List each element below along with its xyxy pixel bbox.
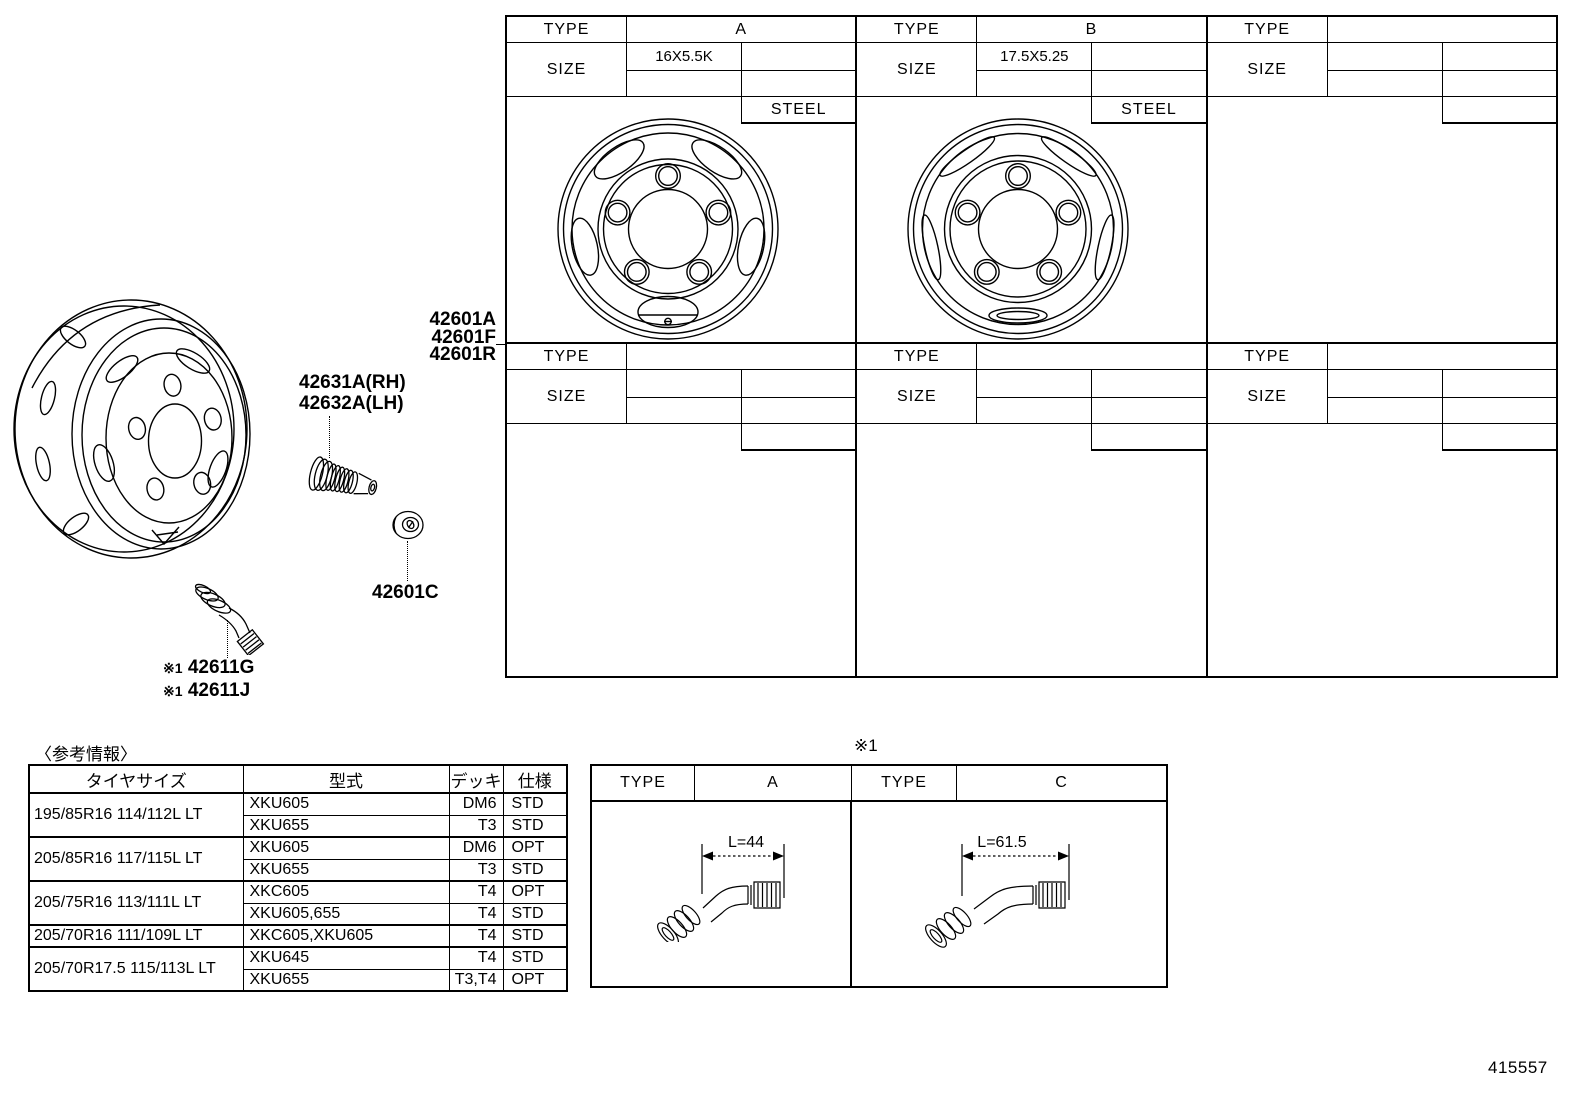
grid-cell (741, 370, 855, 423)
wheel-drawing-b (903, 116, 1133, 344)
ref-row: 205/75R16 113/111L LT XKC605 T4 OPT (29, 881, 567, 903)
valve-type-table: TYPE A TYPE C L=44 (590, 764, 1168, 988)
valve-cell-a: L=44 (592, 802, 852, 986)
spec-cell: OPT (503, 969, 567, 991)
deck-cell: T3,T4 (449, 969, 503, 991)
grid-cell (1442, 43, 1556, 96)
nut-code: 42601C (372, 582, 439, 604)
part-code: 42632A(LH) (299, 393, 406, 414)
model-cell: XKU655 (243, 815, 449, 837)
type-value: B (977, 17, 1205, 42)
tire-cell: 205/75R16 113/111L LT (29, 881, 243, 925)
valve-a-drawing (627, 830, 827, 942)
grid-cell (1091, 370, 1205, 423)
material-box (1091, 424, 1205, 451)
size-row: SIZE 17.5X5.25 (857, 43, 1205, 97)
type-value (1328, 17, 1556, 42)
valve-nut-drawing (391, 508, 427, 542)
part-code: ※1 42611J (163, 680, 254, 703)
size-label: SIZE (1208, 370, 1328, 423)
size-label: SIZE (857, 370, 977, 423)
hub-bolt-drawing (296, 440, 396, 527)
material-box (741, 424, 855, 451)
tire-cell: 205/70R17.5 115/113L LT (29, 947, 243, 991)
part-code: 42601R (408, 346, 496, 364)
model-cell: XKC605 (243, 881, 449, 903)
col-header-model: 型式 (243, 765, 449, 793)
col-header-tire: タイヤサイズ (29, 765, 243, 793)
type-row: TYPE A (507, 17, 855, 43)
spec-cell: STD (503, 925, 567, 947)
type-value (1328, 344, 1556, 369)
deck-cell: T4 (449, 925, 503, 947)
size-grid: 16X5.5K (627, 43, 855, 96)
valve-table-header: TYPE A TYPE C (592, 766, 1166, 802)
leader-line (496, 344, 506, 345)
spec-cell: OPT (503, 837, 567, 859)
reference-table: タイヤサイズ 型式 デッキ 仕様 195/85R16 114/112L LT X… (28, 764, 568, 992)
deck-cell: T4 (449, 881, 503, 903)
type-label: TYPE (857, 344, 977, 369)
type-label: TYPE (852, 766, 957, 800)
spec-cell: STD (503, 815, 567, 837)
hub-bolt-codes: 42631A(RH) 42632A(LH) (299, 372, 406, 414)
ref-row: 195/85R16 114/112L LT XKU605 DM6 STD (29, 793, 567, 815)
spec-cell: STD (503, 859, 567, 881)
size-row: SIZE (857, 370, 1205, 424)
type-value (977, 344, 1205, 369)
valve-table-note: ※1 (854, 736, 878, 756)
deck-cell: DM6 (449, 837, 503, 859)
type-value: C (957, 766, 1166, 800)
type-label: TYPE (507, 344, 627, 369)
type-value: A (695, 766, 852, 800)
model-cell: XKU605,655 (243, 903, 449, 925)
size-row: SIZE (507, 370, 855, 424)
grid-cell (741, 43, 855, 96)
col-header-deck: デッキ (449, 765, 503, 793)
deck-cell: T3 (449, 815, 503, 837)
size-grid (1328, 370, 1556, 423)
type-value (627, 344, 855, 369)
reference-caption: 〈参考情報〉 (35, 740, 137, 765)
size-row: SIZE 16X5.5K (507, 43, 855, 97)
parts-catalog-page: { "wheel_table": { "panels_top": [ { "ty… (0, 0, 1592, 1099)
wheel-panel-b: TYPE B SIZE 17.5X5.25 STEEL (857, 17, 1207, 676)
size-label: SIZE (507, 43, 627, 96)
type-value: A (627, 17, 855, 42)
model-cell: XKU605 (243, 837, 449, 859)
part-code: 42601A (408, 311, 496, 329)
size-value (1328, 43, 1442, 70)
size-row: SIZE (1208, 43, 1556, 97)
wheel-drawing-a (553, 116, 783, 344)
wheel-panel-blank: TYPE SIZE TYPE SIZE (1208, 17, 1556, 676)
grid-cell (1091, 43, 1205, 96)
size-row: SIZE (1208, 370, 1556, 424)
size-label: SIZE (507, 370, 627, 423)
footnote-mark: ※1 (163, 683, 183, 699)
type-row: TYPE (1208, 17, 1556, 43)
leader-line (227, 620, 228, 658)
model-cell: XKU645 (243, 947, 449, 969)
spec-cell: STD (503, 903, 567, 925)
part-code: 42631A(RH) (299, 372, 406, 393)
leader-line (407, 541, 408, 581)
wheel-panel-a: TYPE A SIZE 16X5.5K STEEL (507, 17, 857, 676)
wheel-part-codes: 42601A 42601F 42601R (408, 311, 496, 364)
size-value (1328, 370, 1442, 397)
size-value: 17.5X5.25 (977, 43, 1091, 70)
deck-cell: T4 (449, 947, 503, 969)
material-box (1442, 424, 1556, 451)
figure-number: 415557 (1488, 1058, 1548, 1078)
type-label: TYPE (592, 766, 695, 800)
spec-cell: STD (503, 947, 567, 969)
type-label: TYPE (507, 17, 627, 42)
footnote-mark: ※1 (163, 660, 183, 676)
size-grid (1328, 43, 1556, 96)
size-value: 16X5.5K (627, 43, 741, 70)
deck-cell: DM6 (449, 793, 503, 815)
valve-cell-c: L=61.5 (852, 802, 1166, 986)
valve-table-body: L=44 (592, 802, 1166, 986)
tire-cell: 205/85R16 117/115L LT (29, 837, 243, 881)
type-label: TYPE (1208, 344, 1328, 369)
model-cell: XKU605 (243, 793, 449, 815)
tire-valve-drawing (193, 581, 273, 655)
size-label: SIZE (1208, 43, 1328, 96)
size-grid: 17.5X5.25 (977, 43, 1205, 96)
ref-row: 205/70R16 111/109L LT XKC605,XKU605 T4 S… (29, 925, 567, 947)
type-row: TYPE (857, 344, 1205, 370)
deck-cell: T3 (449, 859, 503, 881)
ref-row: 205/85R16 117/115L LT XKU605 DM6 OPT (29, 837, 567, 859)
tire-cell: 195/85R16 114/112L LT (29, 793, 243, 837)
valve-part-codes: ※1 42611G ※1 42611J (163, 657, 254, 702)
ref-row: 205/70R17.5 115/113L LT XKU645 T4 STD (29, 947, 567, 969)
wheel-spec-table: TYPE A SIZE 16X5.5K STEEL (505, 15, 1558, 678)
model-cell: XKC605,XKU605 (243, 925, 449, 947)
tire-cell: 205/70R16 111/109L LT (29, 925, 243, 947)
type-row: TYPE (1208, 344, 1556, 370)
spec-cell: STD (503, 793, 567, 815)
spec-cell: OPT (503, 881, 567, 903)
type-row: TYPE (507, 344, 855, 370)
material-box (1442, 97, 1556, 124)
size-value (977, 370, 1091, 397)
deck-cell: T4 (449, 903, 503, 925)
wheel-3d-drawing (10, 292, 268, 564)
type-label: TYPE (1208, 17, 1328, 42)
model-cell: XKU655 (243, 969, 449, 991)
valve-c-drawing (882, 830, 1112, 948)
size-grid (977, 370, 1205, 423)
part-code: ※1 42611G (163, 657, 254, 680)
grid-cell (1442, 370, 1556, 423)
size-label: SIZE (857, 43, 977, 96)
ref-header-row: タイヤサイズ 型式 デッキ 仕様 (29, 765, 567, 793)
model-cell: XKU655 (243, 859, 449, 881)
type-label: TYPE (857, 17, 977, 42)
size-grid (627, 370, 855, 423)
col-header-spec: 仕様 (503, 765, 567, 793)
type-row: TYPE B (857, 17, 1205, 43)
size-value (627, 370, 741, 397)
